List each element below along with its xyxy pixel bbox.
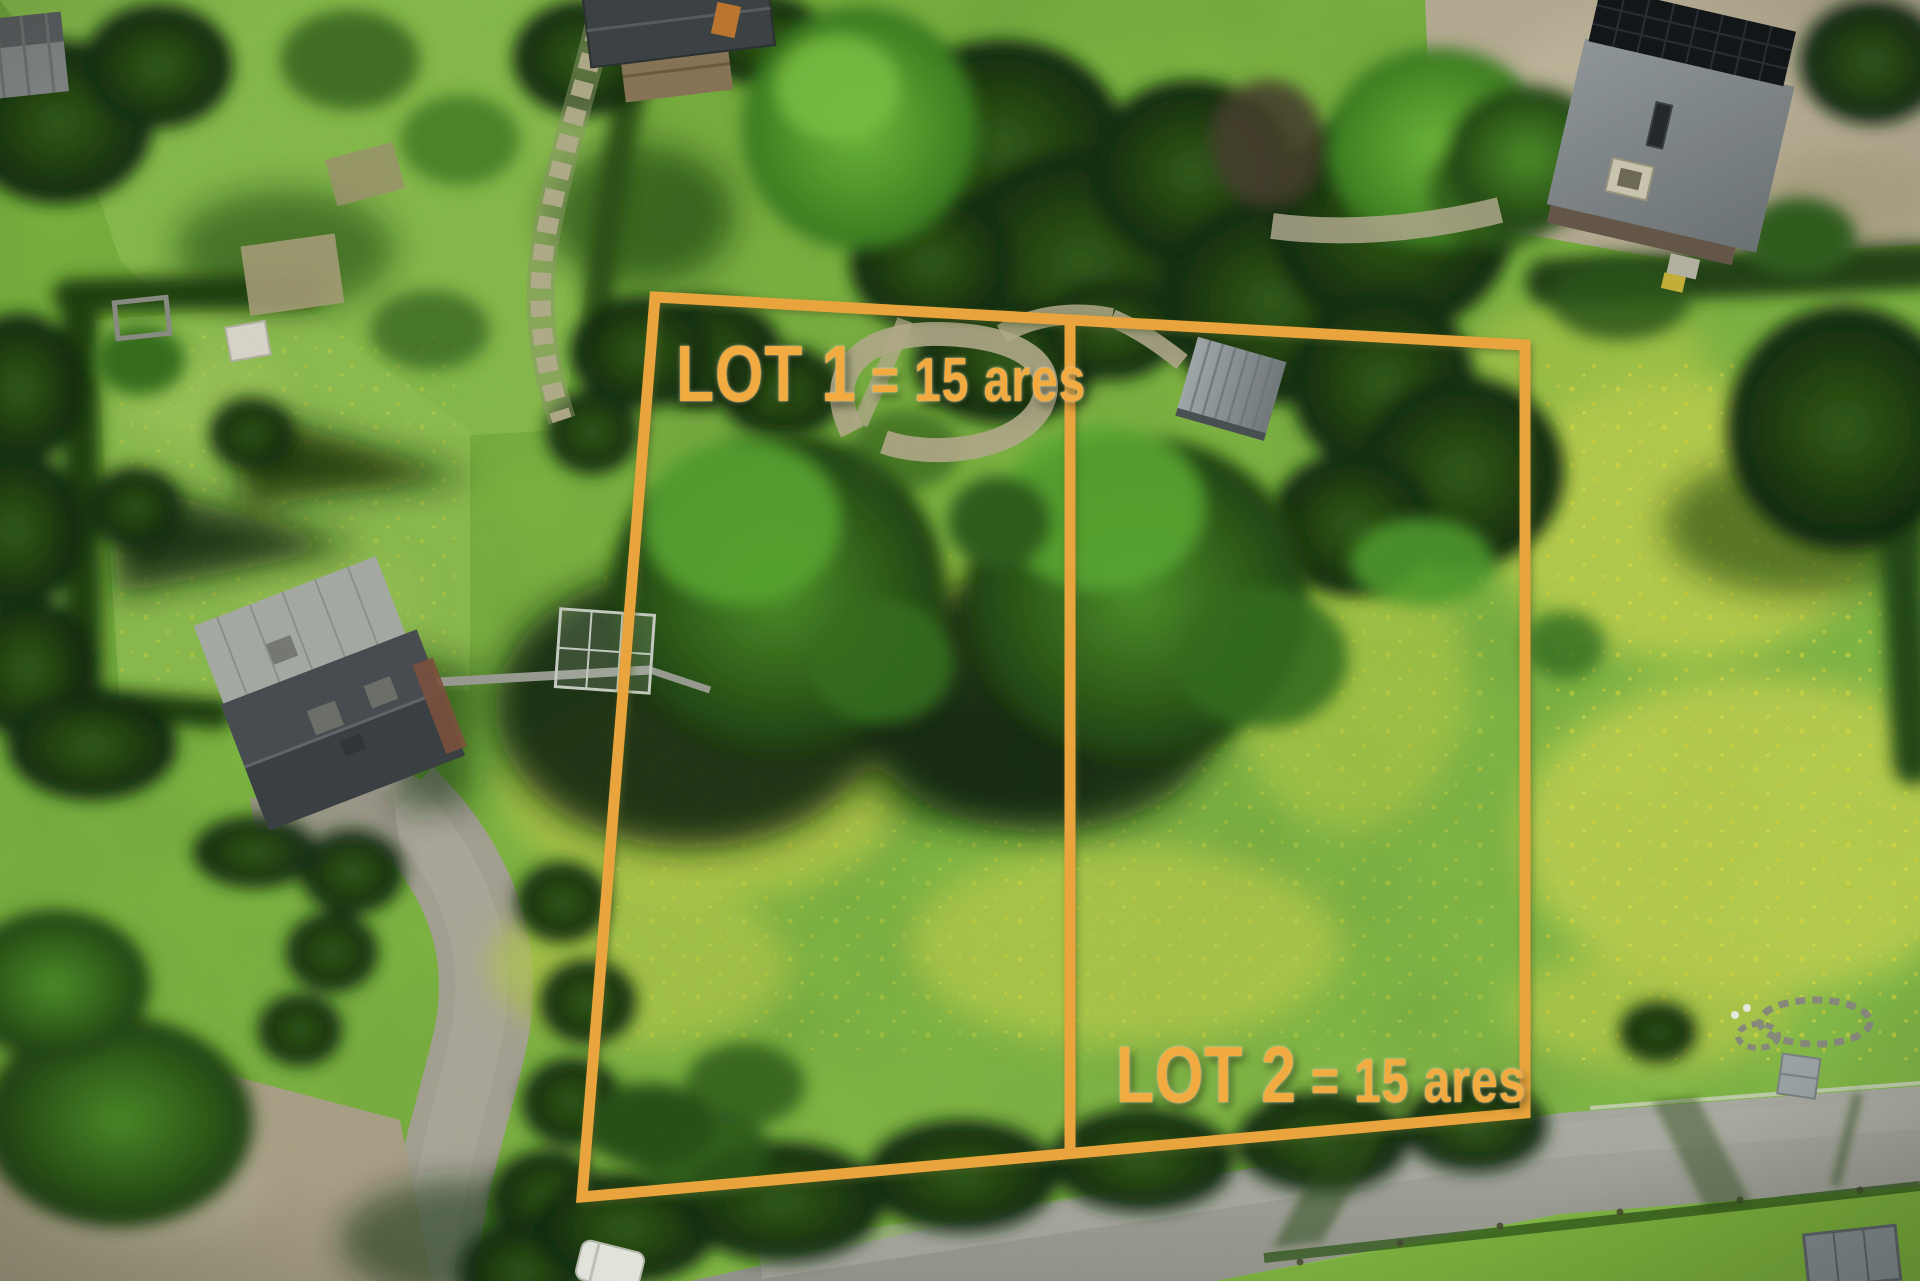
vignette: [0, 0, 1920, 1281]
lot1-label: LOT 1 = 15 ares: [676, 334, 1086, 414]
aerial-photo: LOT 1 = 15 ares LOT 2 = 15 ares: [0, 0, 1920, 1281]
lot2-size: = 15 ares: [1311, 1051, 1526, 1113]
lot2-label: LOT 2 = 15 ares: [1116, 1035, 1526, 1115]
lot1-name: LOT 1: [676, 334, 857, 414]
landscape: [0, 0, 1920, 1281]
lot1-size: = 15 ares: [871, 350, 1086, 412]
lot2-name: LOT 2: [1116, 1035, 1297, 1115]
